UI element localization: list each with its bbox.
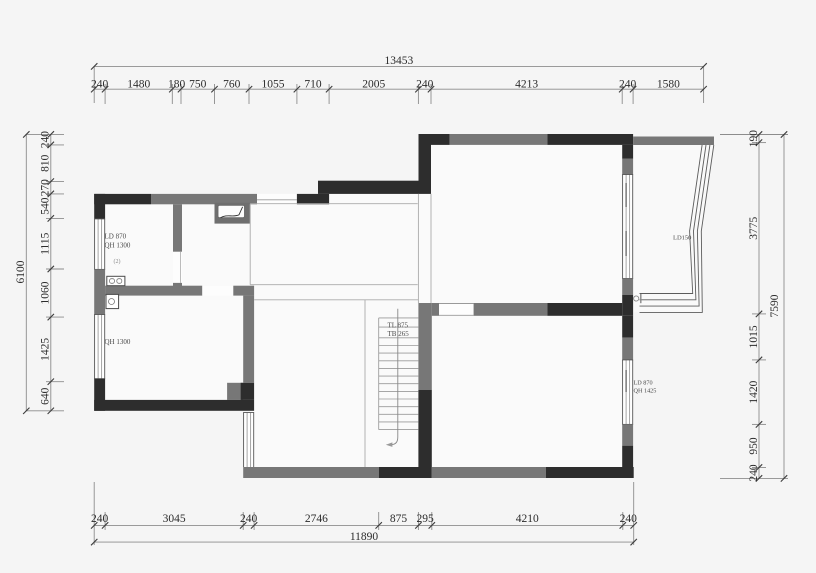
svg-text:11890: 11890 — [350, 531, 379, 543]
svg-text:6100: 6100 — [15, 260, 27, 283]
svg-text:QH 1425: QH 1425 — [634, 388, 657, 395]
svg-text:1425: 1425 — [40, 338, 52, 361]
svg-text:1115: 1115 — [40, 232, 52, 254]
svg-text:240: 240 — [748, 464, 760, 482]
svg-text:190: 190 — [748, 130, 760, 148]
svg-text:810: 810 — [40, 154, 52, 172]
svg-text:3775: 3775 — [748, 217, 760, 240]
svg-text:180: 180 — [168, 78, 186, 90]
svg-text:4213: 4213 — [515, 78, 538, 90]
svg-text:QH 1300: QH 1300 — [105, 242, 131, 250]
svg-text:1580: 1580 — [657, 78, 680, 90]
svg-text:240: 240 — [619, 78, 637, 90]
svg-text:240: 240 — [416, 78, 434, 90]
svg-text:710: 710 — [304, 78, 322, 90]
svg-text:13453: 13453 — [385, 55, 414, 67]
svg-text:240: 240 — [620, 513, 638, 525]
svg-text:QH 1300: QH 1300 — [105, 338, 131, 346]
svg-text:LD 870: LD 870 — [105, 233, 127, 241]
svg-text:1480: 1480 — [127, 78, 150, 90]
svg-text:240: 240 — [91, 513, 109, 525]
svg-text:1015: 1015 — [748, 325, 760, 348]
svg-text:2005: 2005 — [362, 78, 385, 90]
svg-text:3045: 3045 — [163, 513, 186, 525]
svg-text:TL 875: TL 875 — [388, 322, 409, 330]
svg-text:760: 760 — [223, 78, 241, 90]
svg-text:1060: 1060 — [40, 281, 52, 304]
svg-text:2746: 2746 — [305, 513, 328, 525]
svg-text:270: 270 — [40, 179, 52, 197]
svg-text:TB 265: TB 265 — [388, 330, 410, 338]
svg-text:295: 295 — [416, 513, 434, 525]
svg-text:540: 540 — [40, 197, 52, 215]
svg-text:750: 750 — [189, 78, 207, 90]
svg-text:7590: 7590 — [769, 294, 781, 317]
svg-text:240: 240 — [91, 78, 109, 90]
svg-text:1420: 1420 — [748, 380, 760, 403]
svg-text:950: 950 — [748, 437, 760, 455]
svg-text:1055: 1055 — [261, 78, 284, 90]
svg-text:875: 875 — [390, 513, 408, 525]
svg-text:(2): (2) — [114, 258, 121, 265]
svg-text:240: 240 — [40, 131, 52, 149]
svg-text:4210: 4210 — [516, 513, 539, 525]
svg-text:LD150: LD150 — [673, 235, 691, 242]
svg-text:640: 640 — [40, 387, 52, 405]
svg-text:LD 870: LD 870 — [634, 380, 653, 387]
svg-text:240: 240 — [240, 513, 258, 525]
